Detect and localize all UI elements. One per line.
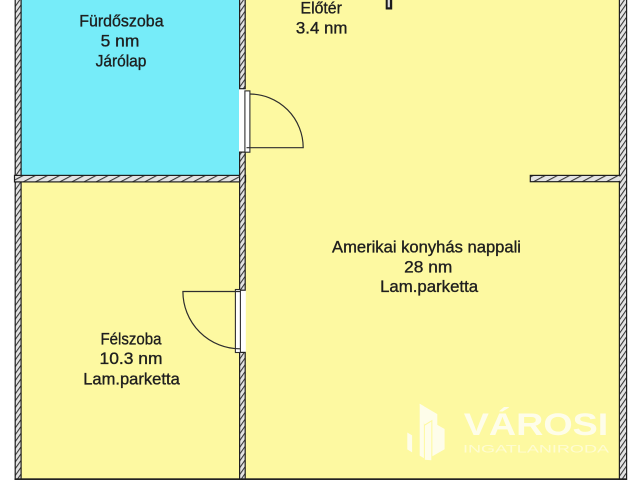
svg-text:Előtér: Előtér xyxy=(301,0,343,18)
svg-text:Lam.parketta: Lam.parketta xyxy=(380,277,479,296)
svg-text:INGATLANIRODA: INGATLANIRODA xyxy=(463,443,610,455)
svg-text:VÁROSI: VÁROSI xyxy=(464,406,609,442)
svg-text:5 nm: 5 nm xyxy=(101,32,140,51)
svg-text:Félszoba: Félszoba xyxy=(101,329,162,348)
svg-text:28 nm: 28 nm xyxy=(404,258,452,277)
svg-text:Amerikai konyhás nappali: Amerikai konyhás nappali xyxy=(332,237,521,256)
svg-text:3.4 nm: 3.4 nm xyxy=(296,19,348,38)
svg-text:Fürdőszoba: Fürdőszoba xyxy=(79,12,164,31)
svg-text:Járólap: Járólap xyxy=(96,51,147,70)
svg-text:10.3 nm: 10.3 nm xyxy=(100,349,163,368)
svg-text:Lam.parketta: Lam.parketta xyxy=(83,370,180,389)
